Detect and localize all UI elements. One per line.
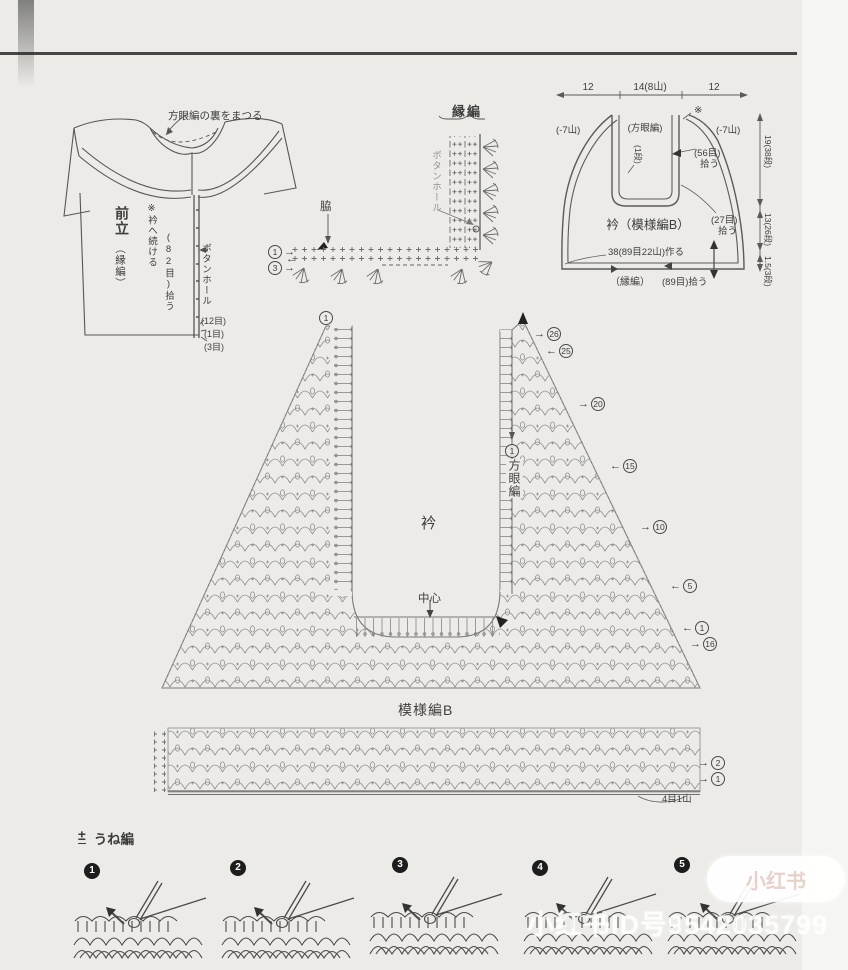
step-illustration-3 bbox=[366, 874, 516, 966]
row-marker-10: →10 bbox=[640, 520, 667, 534]
minus-right: (-7山) bbox=[716, 125, 740, 136]
right-dim-rows-2: 13(26段) bbox=[763, 213, 773, 246]
right-dim-rows-3: 1.5(3段) bbox=[763, 256, 773, 287]
pickup89-label: (89目)拾う bbox=[662, 276, 707, 288]
row-marker-25: ←25 bbox=[546, 344, 573, 358]
edge-row3-marker: 3 → bbox=[268, 261, 295, 275]
step-number-4: 4 bbox=[532, 857, 548, 876]
main-chart-band-label: 模様編B bbox=[398, 700, 453, 720]
row-marker-16: →16 bbox=[690, 637, 717, 651]
band-row-marker-1: →1 bbox=[698, 772, 725, 786]
row-direction-arrow: → bbox=[284, 263, 295, 274]
pickup27-line2: 拾う bbox=[718, 225, 737, 237]
asterisk-mark: ※ bbox=[694, 105, 702, 116]
edge-label: （縁編） bbox=[610, 275, 650, 288]
dim-left: 12 bbox=[582, 82, 594, 93]
edge-chart-buttonhole-label: ボタンホール bbox=[428, 150, 442, 213]
row-marker-20: →20 bbox=[578, 397, 605, 411]
main-lace-chart bbox=[140, 298, 750, 813]
band-row-marker-2: →2 bbox=[698, 756, 725, 770]
dim-center: 14(8山) bbox=[633, 81, 666, 93]
grid-label: (方眼編) bbox=[628, 122, 663, 134]
pickup56-line1: (56目) bbox=[694, 148, 720, 159]
collar-title: 衿（模様編B） bbox=[606, 217, 689, 232]
step-illustration-1 bbox=[70, 878, 220, 970]
edge-chart-side-label: 脇 bbox=[320, 198, 332, 214]
header-rule bbox=[0, 52, 797, 55]
make-note: 38(89目22山)作る bbox=[608, 246, 684, 258]
step-number-3: 3 bbox=[392, 854, 408, 873]
edge-stitch-chart bbox=[262, 92, 507, 307]
row-marker-5: ←5 bbox=[670, 579, 697, 593]
garment-top-note: 方眼編の裏をまつる bbox=[168, 108, 263, 123]
row-marker-26: →26 bbox=[534, 327, 561, 341]
scanned-pattern-page: 方眼編の裏をまつる 前立 （縁編） ※衿へ続ける (82目)拾う ボタンホール … bbox=[0, 0, 848, 970]
main-chart-grid-row-marker: 1 bbox=[505, 441, 519, 459]
row-marker-15: ←15 bbox=[610, 459, 637, 473]
collar-schematic: 12 14(8山) 12 ※ (-7山) (-7山) (方眼編) (1段) (5… bbox=[548, 73, 848, 313]
right-dim-rows-1: 19(38段) bbox=[763, 135, 773, 168]
one-row-label: (1段) bbox=[633, 145, 643, 164]
ridge-stitch-symbol: ± bbox=[78, 828, 86, 844]
step-number-2: 2 bbox=[230, 857, 246, 876]
steps-section-title: ± うね編 bbox=[78, 828, 134, 848]
step-number-1: 1 bbox=[84, 860, 100, 879]
main-chart-left-apex-marker: 1 bbox=[319, 308, 333, 326]
garment-buttonhole-label: ボタンホール bbox=[198, 243, 212, 306]
step-illustration-2 bbox=[218, 878, 368, 970]
main-chart-grid-label: 方眼編 bbox=[506, 459, 523, 498]
step-number-5: 5 bbox=[674, 854, 690, 873]
band-note: 4目1山 bbox=[662, 791, 692, 805]
dim-right: 12 bbox=[708, 82, 720, 93]
watermark-id-text: 小红书ID号9542035799 bbox=[527, 903, 828, 942]
row-marker-1: ←1 bbox=[682, 621, 709, 635]
main-chart-collar-label: 衿 bbox=[421, 512, 436, 533]
minus-left: (-7山) bbox=[556, 125, 580, 136]
garment-name-label: 前立 bbox=[112, 206, 132, 236]
steps-title-text: うね編 bbox=[94, 828, 135, 848]
garment-name-sub-label: （縁編） bbox=[113, 243, 128, 289]
main-chart-center-label: 中心 bbox=[418, 590, 441, 606]
watermark-badge: 小红书 bbox=[707, 856, 845, 902]
pickup56-line2: 拾う bbox=[700, 158, 719, 170]
edge-chart-title: 縁編 bbox=[452, 101, 482, 120]
page-fold-shadow bbox=[18, 0, 34, 88]
pickup27-line1: (27目) bbox=[711, 215, 737, 226]
garment-continue-note: ※衿へ続ける bbox=[144, 203, 158, 268]
